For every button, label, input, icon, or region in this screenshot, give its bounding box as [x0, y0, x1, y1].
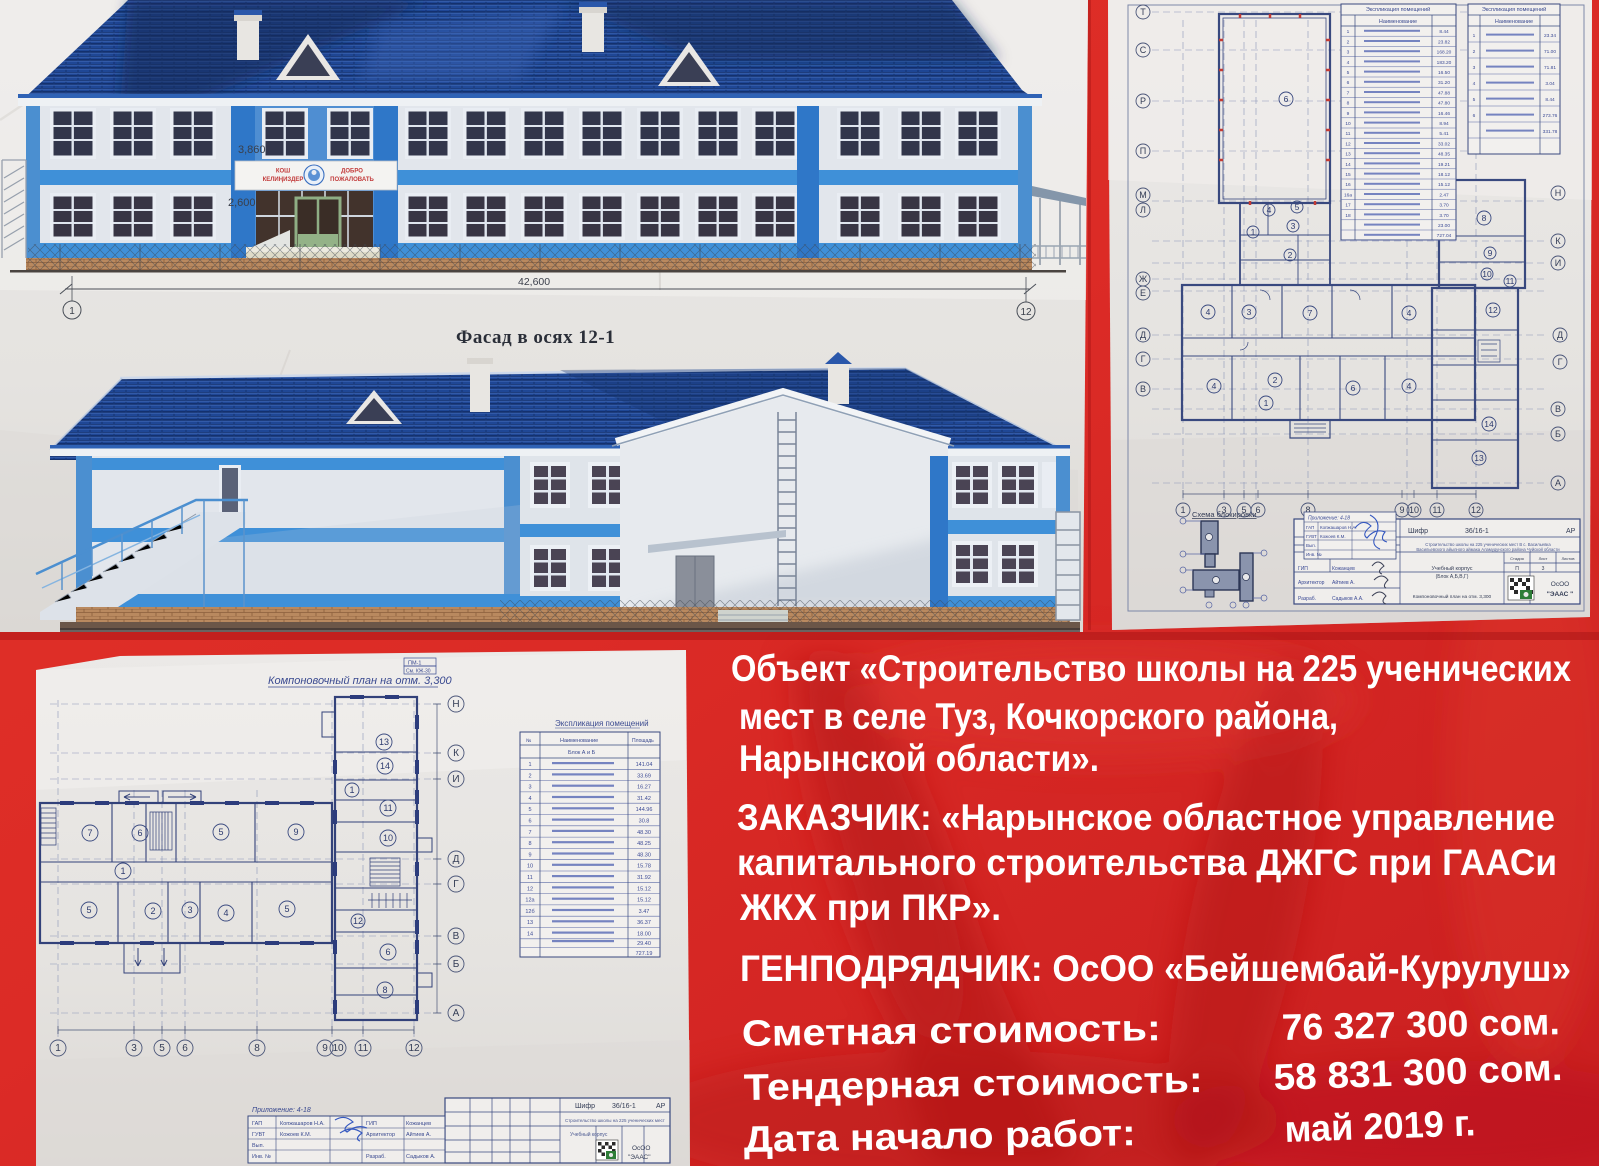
svg-text:КЕЛИҢИЗДЕР: КЕЛИҢИЗДЕР	[263, 177, 304, 183]
svg-text:4: 4	[528, 796, 531, 802]
svg-text:71.00: 71.00	[1544, 49, 1556, 55]
svg-text:144.96: 144.96	[636, 807, 653, 813]
svg-text:2: 2	[1347, 39, 1350, 45]
svg-text:Н: Н	[452, 699, 459, 710]
svg-text:5: 5	[528, 807, 531, 813]
svg-text:П: П	[1140, 146, 1146, 156]
svg-text:Вып.: Вып.	[1306, 543, 1316, 548]
svg-text:16а: 16а	[1344, 192, 1352, 198]
svg-text:1: 1	[120, 866, 125, 876]
svg-text:5: 5	[218, 827, 223, 837]
svg-text:ГУВТ: ГУВТ	[1306, 534, 1317, 539]
svg-text:3: 3	[1542, 566, 1545, 572]
svg-text:Р: Р	[1140, 96, 1146, 106]
svg-text:И: И	[1555, 258, 1561, 268]
svg-text:23.00: 23.00	[1438, 223, 1450, 229]
svg-text:4: 4	[1407, 381, 1412, 391]
svg-text:Блок А и Б: Блок А и Б	[568, 750, 596, 756]
svg-text:47.80: 47.80	[1438, 101, 1450, 107]
svg-text:3.70: 3.70	[1439, 213, 1449, 219]
svg-text:С: С	[1140, 45, 1147, 55]
svg-text:8: 8	[1482, 213, 1487, 223]
svg-text:ЗАКАЗЧИК: «Нарынское областное: ЗАКАЗЧИК: «Нарынское областное управлени…	[737, 797, 1555, 838]
svg-text:2: 2	[528, 773, 531, 779]
svg-text:33.69: 33.69	[637, 773, 651, 779]
svg-text:Разраб.: Разраб.	[1298, 596, 1316, 602]
svg-text:ПОЖАЛОВАТЬ: ПОЖАЛОВАТЬ	[330, 177, 374, 183]
svg-text:"ЭААС": "ЭААС"	[628, 1154, 651, 1161]
svg-text:май 2019 г.: май 2019 г.	[1284, 1102, 1476, 1150]
svg-text:Площадь: Площадь	[632, 738, 654, 744]
svg-text:11: 11	[527, 875, 533, 881]
svg-text:ГАП: ГАП	[1306, 525, 1314, 530]
svg-text:13: 13	[1345, 152, 1351, 158]
svg-text:Приложение: 4-18: Приложение: 4-18	[252, 1107, 311, 1114]
svg-text:Д: Д	[1557, 330, 1563, 340]
svg-text:3: 3	[1473, 65, 1476, 71]
svg-text:3: 3	[528, 785, 531, 791]
svg-text:3: 3	[1291, 221, 1296, 231]
svg-text:10: 10	[1482, 269, 1492, 279]
svg-text:76 327 300 сом.: 76 327 300 сом.	[1281, 1001, 1560, 1048]
svg-text:Т: Т	[1140, 7, 1146, 17]
svg-text:Д: Д	[1140, 330, 1146, 340]
svg-text:8.44: 8.44	[1545, 97, 1555, 103]
svg-text:16.27: 16.27	[637, 785, 651, 791]
svg-text:47.88: 47.88	[1438, 90, 1450, 96]
svg-text:3: 3	[187, 905, 192, 915]
svg-text:4: 4	[1407, 308, 1412, 318]
svg-text:6: 6	[528, 819, 531, 825]
svg-text:48.25: 48.25	[637, 841, 651, 847]
svg-text:Стадия: Стадия	[1510, 556, 1524, 561]
svg-text:Дата начало работ:: Дата начало работ:	[743, 1112, 1136, 1160]
svg-text:18.12: 18.12	[1438, 172, 1450, 178]
svg-text:5.41: 5.41	[1439, 131, 1449, 137]
svg-text:Кожанцев: Кожанцев	[1332, 566, 1355, 572]
svg-text:23.82: 23.82	[1438, 39, 1450, 45]
svg-text:727.04: 727.04	[1437, 233, 1452, 239]
svg-text:14: 14	[527, 932, 533, 938]
svg-text:8: 8	[382, 985, 387, 995]
svg-text:11: 11	[1432, 505, 1441, 515]
svg-text:9: 9	[1347, 111, 1350, 117]
svg-text:273.76: 273.76	[1543, 113, 1558, 119]
svg-text:Айтиев А.: Айтиев А.	[406, 1131, 432, 1138]
svg-text:12: 12	[1345, 141, 1351, 147]
svg-text:31.42: 31.42	[637, 796, 651, 802]
svg-text:12: 12	[1488, 305, 1498, 315]
svg-text:ОсОО: ОсОО	[632, 1145, 650, 1152]
svg-text:7: 7	[1347, 90, 1350, 96]
svg-text:3,860: 3,860	[238, 144, 266, 156]
svg-text:Кожоев К.М.: Кожоев К.М.	[1320, 534, 1346, 539]
svg-text:АР: АР	[1566, 528, 1576, 535]
svg-text:10: 10	[332, 1043, 344, 1054]
svg-text:15.78: 15.78	[637, 864, 651, 870]
svg-text:М: М	[1139, 190, 1147, 200]
svg-text:141.04: 141.04	[636, 762, 653, 768]
svg-text:1: 1	[1251, 227, 1256, 237]
svg-text:Фасад в осях 12-1: Фасад в осях 12-1	[456, 327, 615, 348]
svg-text:5: 5	[1295, 202, 1300, 212]
svg-text:10: 10	[1409, 505, 1419, 515]
svg-text:13: 13	[1474, 453, 1484, 463]
svg-text:6: 6	[1473, 113, 1476, 119]
svg-text:Г: Г	[453, 879, 459, 890]
svg-text:ГИП: ГИП	[1298, 566, 1308, 572]
svg-text:7: 7	[87, 828, 92, 838]
svg-text:Наименование: Наименование	[560, 738, 598, 744]
svg-text:331.78: 331.78	[1543, 129, 1558, 135]
svg-text:1: 1	[1264, 398, 1269, 408]
svg-text:1: 1	[1180, 505, 1185, 515]
svg-text:ГЕНПОДРЯДЧИК: ОсОО «Бейшембай: ГЕНПОДРЯДЧИК: ОсОО «Бейшембай-Курулуш»	[740, 948, 1571, 989]
svg-text:8: 8	[254, 1043, 260, 1054]
svg-text:12: 12	[408, 1043, 420, 1054]
svg-text:Шифр: Шифр	[1408, 528, 1428, 535]
svg-text:К: К	[1555, 236, 1561, 246]
svg-text:71.81: 71.81	[1544, 65, 1556, 71]
svg-text:12: 12	[353, 916, 363, 926]
svg-text:2.47: 2.47	[1439, 192, 1449, 198]
svg-text:Архитектор: Архитектор	[1298, 580, 1325, 586]
svg-text:6: 6	[1347, 80, 1350, 86]
svg-text:4: 4	[1347, 60, 1350, 66]
svg-text:18.00: 18.00	[637, 932, 651, 938]
svg-text:9: 9	[528, 852, 531, 858]
svg-text:3.70: 3.70	[1439, 203, 1449, 209]
svg-text:36.37: 36.37	[637, 920, 651, 926]
svg-text:ГИП: ГИП	[366, 1121, 377, 1127]
svg-text:12: 12	[527, 886, 533, 892]
svg-text:2: 2	[1288, 250, 1293, 260]
svg-text:1: 1	[349, 785, 354, 795]
svg-text:Экспликация помещений: Экспликация помещений	[1482, 6, 1546, 13]
svg-text:9: 9	[322, 1043, 328, 1054]
svg-text:3.04: 3.04	[1545, 81, 1555, 87]
svg-text:Учебный корпус: Учебный корпус	[1431, 565, 1472, 572]
svg-text:12: 12	[1020, 307, 1032, 318]
svg-text:Разраб.: Разраб.	[366, 1154, 386, 1160]
svg-text:19.21: 19.21	[1438, 162, 1450, 168]
svg-text:727.19: 727.19	[636, 951, 653, 957]
svg-text:Схема блокировки: Схема блокировки	[1192, 510, 1257, 519]
svg-text:14: 14	[1484, 419, 1494, 429]
svg-text:Кожанцев: Кожанцев	[406, 1121, 431, 1127]
svg-text:13: 13	[527, 920, 533, 926]
svg-text:ГУВТ: ГУВТ	[252, 1132, 266, 1138]
svg-text:Е: Е	[1140, 288, 1146, 298]
svg-text:Л: Л	[1140, 205, 1146, 215]
svg-text:Лист: Лист	[1539, 556, 1548, 561]
svg-text:Д: Д	[453, 854, 460, 865]
svg-text:Архитектор: Архитектор	[366, 1132, 395, 1138]
svg-text:Учебный корпус: Учебный корпус	[570, 1131, 608, 1138]
svg-text:Ж: Ж	[1139, 274, 1148, 284]
svg-text:2: 2	[150, 906, 155, 916]
svg-text:2,600: 2,600	[228, 197, 256, 209]
svg-text:См. КЖ-30: См. КЖ-30	[406, 669, 431, 675]
svg-text:15: 15	[1345, 172, 1351, 178]
svg-text:11: 11	[1346, 131, 1351, 137]
svg-text:Б: Б	[1555, 429, 1561, 439]
svg-text:4: 4	[1212, 381, 1217, 391]
svg-text:Листов: Листов	[1562, 556, 1575, 561]
svg-text:Строительство школы на 225 уче: Строительство школы на 225 ученических м…	[565, 1118, 665, 1123]
svg-text:168.20: 168.20	[1437, 50, 1452, 56]
svg-text:18: 18	[1345, 213, 1351, 219]
svg-text:6: 6	[182, 1043, 188, 1054]
svg-text:В: В	[453, 931, 460, 942]
svg-text:10: 10	[527, 864, 533, 870]
svg-text:Васильевского айылного аймака: Васильевского айылного аймака Аламудунск…	[1416, 547, 1560, 552]
svg-text:Копжашаров Н.А.: Копжашаров Н.А.	[280, 1121, 325, 1127]
svg-text:Наименование: Наименование	[1379, 19, 1417, 25]
svg-text:15.12: 15.12	[637, 898, 651, 904]
svg-text:8.44: 8.44	[1439, 29, 1449, 35]
svg-text:Г: Г	[1558, 357, 1563, 367]
svg-text:Приложение: 4-18: Приложение: 4-18	[1308, 516, 1350, 522]
svg-text:5: 5	[284, 904, 289, 914]
svg-text:4: 4	[1473, 81, 1476, 87]
svg-text:АР: АР	[656, 1103, 666, 1110]
svg-text:16: 16	[1345, 182, 1351, 188]
svg-text:13: 13	[379, 737, 389, 747]
svg-text:№: №	[526, 738, 531, 744]
svg-text:Инв. №: Инв. №	[252, 1154, 271, 1160]
svg-text:48.30: 48.30	[637, 852, 651, 858]
svg-text:15.12: 15.12	[1438, 182, 1450, 188]
svg-text:4: 4	[1206, 307, 1211, 317]
svg-text:Инв. №: Инв. №	[1306, 552, 1322, 557]
svg-text:29.40: 29.40	[637, 941, 651, 947]
svg-text:12б: 12б	[525, 909, 534, 915]
svg-text:капитального строительства ДЖГ: капитального строительства ДЖГС при ГААС…	[737, 842, 1557, 883]
svg-text:Нарынской области».: Нарынской области».	[739, 738, 1099, 779]
svg-text:1: 1	[528, 762, 531, 768]
svg-text:3: 3	[1247, 307, 1252, 317]
svg-text:31.20: 31.20	[1438, 80, 1450, 86]
svg-text:16.46: 16.46	[1438, 111, 1450, 117]
svg-text:Б: Б	[453, 959, 460, 970]
svg-text:Вып.: Вып.	[252, 1143, 265, 1149]
svg-text:Кожоев К.М.: Кожоев К.М.	[280, 1132, 312, 1138]
svg-text:23.34: 23.34	[1544, 33, 1556, 39]
svg-text:КОШ: КОШ	[276, 169, 290, 175]
svg-text:ОсОО: ОсОО	[1551, 581, 1569, 588]
svg-text:7: 7	[1308, 308, 1313, 318]
svg-text:В: В	[1555, 404, 1561, 414]
svg-text:3: 3	[131, 1043, 137, 1054]
svg-text:11: 11	[1506, 276, 1515, 286]
svg-text:2: 2	[1273, 375, 1278, 385]
svg-text:14: 14	[1345, 162, 1351, 168]
svg-text:ПМ-1: ПМ-1	[408, 661, 421, 667]
svg-text:8.94: 8.94	[1439, 121, 1449, 127]
svg-text:К: К	[453, 748, 459, 759]
svg-text:4: 4	[1267, 205, 1272, 215]
svg-text:Экспликация помещений: Экспликация помещений	[1366, 6, 1430, 13]
svg-text:мест в селе Туз, Кочкорского р: мест в селе Туз, Кочкорского района,	[739, 696, 1338, 737]
svg-text:7: 7	[528, 830, 531, 836]
svg-text:6: 6	[1351, 383, 1356, 393]
svg-text:Компоновочный план на отм. 3,3: Компоновочный план на отм. 3,300	[268, 675, 453, 687]
svg-text:4: 4	[223, 908, 228, 918]
svg-text:8: 8	[1347, 101, 1350, 107]
svg-text:Шифр: Шифр	[575, 1103, 595, 1110]
svg-text:17: 17	[1345, 203, 1351, 209]
svg-text:Объект «Строительство школы на: Объект «Строительство школы на 225 учени…	[731, 648, 1571, 689]
svg-text:Садыков А.А.: Садыков А.А.	[1332, 596, 1363, 602]
svg-text:ГАП: ГАП	[252, 1121, 262, 1127]
svg-text:33.02: 33.02	[1438, 141, 1450, 147]
svg-text:П: П	[1515, 566, 1519, 572]
svg-text:30.8: 30.8	[639, 819, 650, 825]
svg-text:10: 10	[1345, 121, 1351, 127]
svg-text:5: 5	[1473, 97, 1476, 103]
svg-text:9: 9	[1399, 505, 1404, 515]
svg-text:А: А	[1555, 478, 1561, 488]
svg-text:183.20: 183.20	[1437, 60, 1452, 66]
svg-text:ДОБРО: ДОБРО	[341, 169, 363, 175]
svg-text:31.92: 31.92	[637, 875, 651, 881]
svg-text:12а: 12а	[525, 898, 535, 904]
svg-text:5: 5	[159, 1043, 165, 1054]
svg-text:Айтиев А.: Айтиев А.	[1332, 579, 1355, 586]
svg-text:48.35: 48.35	[1438, 152, 1450, 158]
svg-text:9: 9	[293, 827, 298, 837]
svg-text:Экспликация помещений: Экспликация помещений	[555, 719, 649, 728]
svg-text:2: 2	[1473, 49, 1476, 55]
svg-text:В: В	[1140, 384, 1146, 394]
svg-text:6: 6	[1284, 94, 1289, 104]
svg-text:14: 14	[380, 761, 390, 771]
svg-text:42,600: 42,600	[518, 276, 550, 288]
svg-text:12: 12	[1471, 505, 1481, 515]
svg-text:Сметная стоимость:: Сметная стоимость:	[742, 1007, 1162, 1054]
svg-text:1: 1	[1347, 29, 1350, 35]
svg-text:5: 5	[86, 905, 91, 915]
svg-text:Копжашаров Н.А.: Копжашаров Н.А.	[1320, 525, 1357, 530]
svg-text:16.50: 16.50	[1438, 70, 1450, 76]
svg-text:Компоновочный план на отм. 3,3: Компоновочный план на отм. 3,300	[1413, 593, 1492, 600]
svg-text:Н: Н	[1555, 188, 1562, 198]
svg-text:Садыков А.: Садыков А.	[406, 1154, 436, 1160]
svg-text:Тендерная стоимость:: Тендерная стоимость:	[743, 1059, 1203, 1108]
svg-text:И: И	[452, 774, 459, 785]
svg-text:9: 9	[1488, 248, 1493, 258]
svg-text:10: 10	[383, 833, 393, 843]
svg-text:3.47: 3.47	[639, 909, 650, 915]
svg-text:1: 1	[55, 1043, 61, 1054]
svg-text:5: 5	[1347, 70, 1350, 76]
svg-text:36/16-1: 36/16-1	[612, 1103, 636, 1110]
svg-text:Г: Г	[1141, 354, 1146, 364]
svg-text:11: 11	[358, 1043, 369, 1054]
svg-text:"ЭААС ": "ЭААС "	[1547, 591, 1574, 598]
svg-text:8: 8	[528, 841, 531, 847]
svg-text:15.12: 15.12	[637, 886, 651, 892]
svg-text:ЖКХ при ПКР».: ЖКХ при ПКР».	[739, 887, 1001, 928]
svg-text:48.30: 48.30	[637, 830, 651, 836]
svg-text:Наименование: Наименование	[1495, 19, 1533, 25]
svg-text:6: 6	[137, 828, 142, 838]
svg-text:11: 11	[383, 803, 392, 813]
svg-text:3: 3	[1347, 50, 1350, 56]
svg-text:1: 1	[1473, 33, 1476, 39]
svg-text:(Блок А,Б,В,Г): (Блок А,Б,В,Г)	[1436, 574, 1469, 580]
svg-text:1: 1	[69, 306, 75, 317]
svg-text:36/16-1: 36/16-1	[1465, 528, 1489, 535]
svg-text:6: 6	[385, 947, 390, 957]
svg-text:А: А	[453, 1008, 460, 1019]
